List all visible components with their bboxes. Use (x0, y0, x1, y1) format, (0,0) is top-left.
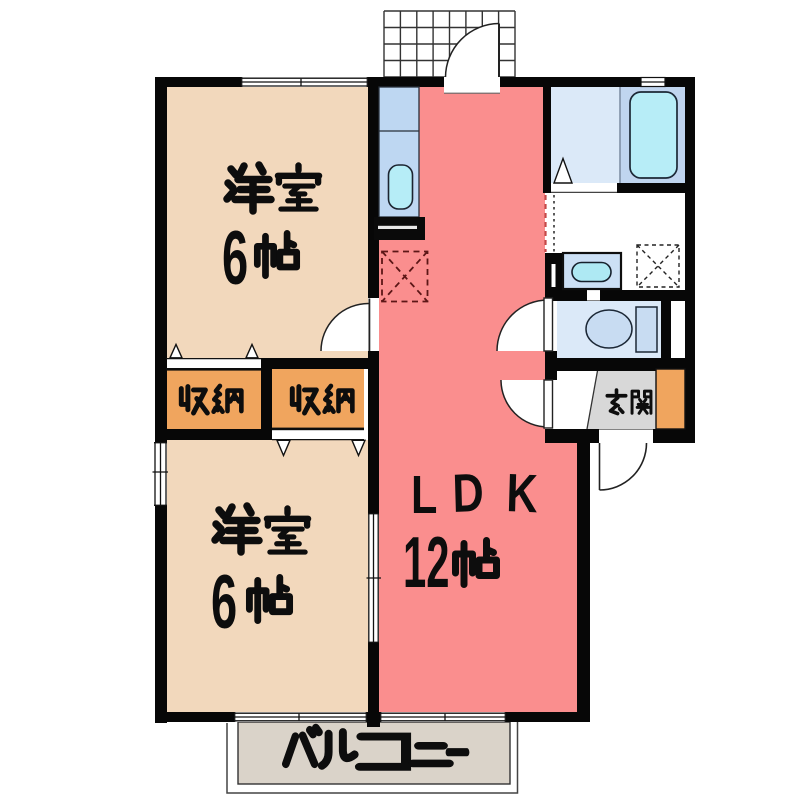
svg-text:6: 6 (222, 217, 248, 301)
svg-text:12: 12 (403, 523, 449, 603)
svg-text:L: L (411, 466, 437, 526)
svg-text:K: K (506, 464, 539, 525)
svg-text:6: 6 (211, 561, 237, 645)
svg-text:D: D (452, 463, 485, 524)
